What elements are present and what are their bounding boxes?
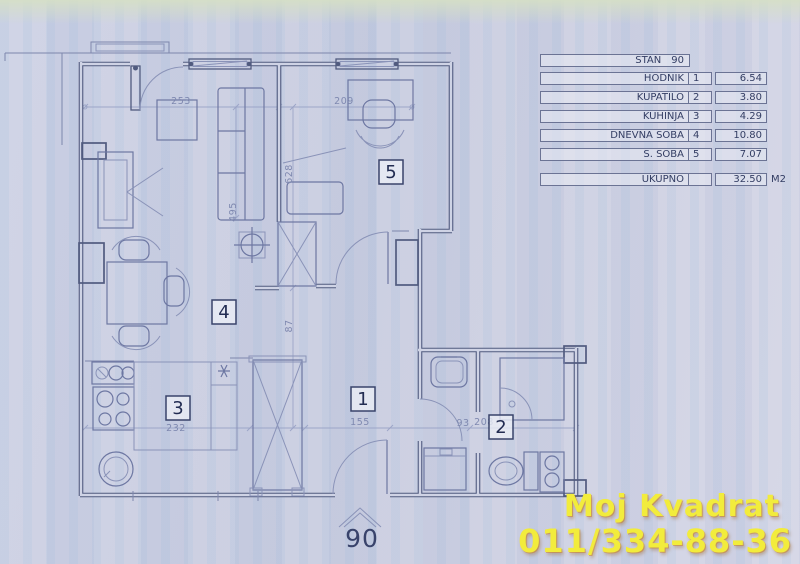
dim-bedroom-width: 209 xyxy=(334,96,354,107)
wardrobe-hall xyxy=(249,356,306,496)
legend-row-total: UKUPNO 32.50 M2 xyxy=(540,173,786,186)
hallway-fixtures xyxy=(249,356,306,496)
window-living-room xyxy=(189,59,252,69)
ceiling-fixture-symbol xyxy=(234,227,270,263)
kitchen-fixtures xyxy=(92,362,237,486)
legend-row-dnevna-soba: DNEVNA SOBA 4 10.80 xyxy=(540,129,767,142)
kitchen-sink xyxy=(92,362,134,384)
small-basin xyxy=(431,357,467,387)
legend-label: DNEVNA SOBA xyxy=(540,129,689,142)
window-bedroom xyxy=(336,59,399,69)
legend-area-value: 6.54 xyxy=(715,72,767,85)
wall-step xyxy=(82,143,106,159)
watermark-brand: Moj Kvadrat xyxy=(518,490,780,524)
sofa xyxy=(218,88,264,220)
entrance-door xyxy=(333,440,387,494)
legend-room-number: 3 xyxy=(688,110,712,123)
legend-area-value: 10.80 xyxy=(715,129,767,142)
legend-area-value: 4.29 xyxy=(715,110,767,123)
legend-row-s-soba: S. SOBA 5 7.07 xyxy=(540,148,767,161)
legend-area-value: 3.80 xyxy=(715,91,767,104)
entrance-marker: 90 xyxy=(339,508,381,553)
legend-row-kuhinja: KUHINJA 3 4.29 xyxy=(540,110,767,123)
legend-total-unit: M2 xyxy=(771,173,786,186)
legend-room-number: 2 xyxy=(688,91,712,104)
legend-label: KUHINJA xyxy=(540,110,689,123)
room-label-1: 1 xyxy=(351,387,375,411)
legend-row-title: STAN90 xyxy=(540,54,690,67)
facade-lines xyxy=(5,42,451,145)
living-room-furniture xyxy=(98,88,270,350)
room-label-2: 2 xyxy=(489,415,513,439)
dim-bath-small: 93 xyxy=(456,418,469,429)
dim-hall: 155 xyxy=(350,417,370,428)
legend-row-hodnik: HODNIK 1 6.54 xyxy=(540,72,767,85)
legend-total-number-cell xyxy=(688,173,712,186)
legend-label: KUPATILO xyxy=(540,91,689,104)
dim-living-width: 253 xyxy=(171,96,191,107)
vanity-sink xyxy=(540,452,564,492)
dining-table-set xyxy=(107,236,190,349)
wall-pier xyxy=(396,240,418,285)
svg-text:5: 5 xyxy=(385,162,396,183)
watermark-phone: 011/334-88-36 xyxy=(518,524,792,558)
legend-room-number: 5 xyxy=(688,148,712,161)
svg-text:4: 4 xyxy=(218,302,229,323)
legend-title-label: STAN xyxy=(635,55,661,66)
legend-label: S. SOBA xyxy=(540,148,689,161)
bedroom-door xyxy=(336,232,388,284)
legend-label: HODNIK xyxy=(540,72,689,85)
floor-plan-photo: { "legend": { "title_label": "STAN", "ti… xyxy=(0,0,800,564)
legend-title-number: 90 xyxy=(671,55,684,66)
legend-room-number: 4 xyxy=(688,129,712,142)
svg-text:2: 2 xyxy=(495,417,506,438)
dim-kitchen: 232 xyxy=(166,423,186,434)
boiler xyxy=(99,452,133,486)
watermark: Moj Kvadrat 011/334-88-36 xyxy=(518,490,792,558)
washing-machine xyxy=(424,448,466,490)
shower xyxy=(500,358,564,420)
room-label-5: 5 xyxy=(379,160,403,184)
svg-text:3: 3 xyxy=(172,398,183,419)
svg-text:1: 1 xyxy=(357,389,368,410)
legend-room-number: 1 xyxy=(688,72,712,85)
legend-table: STAN90 HODNIK 1 6.54 KUPATILO 2 3.80 KUH… xyxy=(540,54,796,194)
dresser xyxy=(287,182,343,214)
dimension-lines xyxy=(82,104,579,431)
legend-total-area: 32.50 xyxy=(715,173,767,186)
entrance-number: 90 xyxy=(345,524,379,553)
legend-area-value: 7.07 xyxy=(715,148,767,161)
dim-living-height: 495 xyxy=(228,202,239,222)
legend-total-label: UKUPNO xyxy=(540,173,689,186)
room-label-4: 4 xyxy=(212,300,236,324)
room-label-3: 3 xyxy=(166,396,190,420)
light-symbol xyxy=(218,365,230,377)
stove xyxy=(93,387,134,430)
dim-bedroom-height: 628 xyxy=(284,164,295,184)
dim-passage: 87 xyxy=(284,319,295,332)
toilet xyxy=(489,452,538,490)
legend-row-kupatilo: KUPATILO 2 3.80 xyxy=(540,91,767,104)
legend-title-cell: STAN90 xyxy=(540,54,690,67)
wardrobe-bedroom xyxy=(278,222,316,286)
tv-cabinet xyxy=(98,152,163,228)
